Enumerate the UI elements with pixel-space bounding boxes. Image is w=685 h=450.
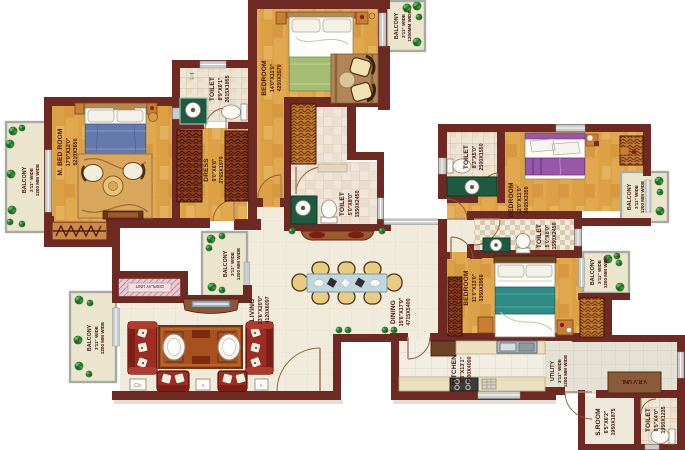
svg-text:DISPLAY UNIT: DISPLAY UNIT <box>135 284 164 289</box>
svg-text:V.R.V UNI.: V.R.V UNI. <box>621 378 647 384</box>
svg-text:BEDROOM: BEDROOM <box>508 182 515 217</box>
svg-text:1200 MM WIDE: 1200 MM WIDE <box>35 164 40 196</box>
svg-text:5'0"X8'0": 5'0"X8'0" <box>545 224 551 247</box>
svg-text:TOILET: TOILET <box>463 145 470 169</box>
svg-text:1950X1235: 1950X1235 <box>661 406 667 433</box>
svg-text:13'6"X20'0": 13'6"X20'0" <box>258 295 264 324</box>
svg-text:6'5"X4'0": 6'5"X4'0" <box>654 408 660 431</box>
svg-text:1550X2450: 1550X2450 <box>552 222 558 249</box>
svg-text:11'0"X13'0": 11'0"X13'0" <box>472 273 478 302</box>
svg-text:2500X4000: 2500X4000 <box>467 356 473 383</box>
svg-text:3'11" WIDE: 3'11" WIDE <box>557 359 562 383</box>
svg-text:14'0"X11'9": 14'0"X11'9" <box>270 63 276 92</box>
svg-text:○: ○ <box>259 383 262 389</box>
svg-text:DRESS: DRESS <box>203 158 210 182</box>
svg-text:9'0"X6'6": 9'0"X6'6" <box>212 158 218 181</box>
svg-text:4120X6097: 4120X6097 <box>265 296 271 323</box>
svg-text:2765X1970: 2765X1970 <box>219 156 225 183</box>
svg-text:TOILET: TOILET <box>536 224 543 248</box>
svg-text:2615X1855: 2615X1855 <box>225 75 231 102</box>
svg-text:M. BED ROOM: M. BED ROOM <box>57 129 64 176</box>
svg-text:BALCONY: BALCONY <box>22 166 28 193</box>
svg-text:3'11" WIDE: 3'11" WIDE <box>230 252 235 276</box>
svg-text:3'11" WIDE: 3'11" WIDE <box>29 168 34 192</box>
svg-text:2500X1550: 2500X1550 <box>479 143 485 170</box>
svg-text:8'3"X5'0": 8'3"X5'0" <box>472 145 478 168</box>
svg-text:BALCONY: BALCONY <box>87 324 93 351</box>
svg-text:15'6"X17'9": 15'6"X17'9" <box>399 297 405 326</box>
svg-text:6'5"X6'2": 6'5"X6'2" <box>604 410 610 433</box>
svg-text:5210X3650: 5210X3650 <box>73 138 79 165</box>
svg-text:LIVING: LIVING <box>249 299 256 322</box>
svg-text:3'11" WIDE: 3'11" WIDE <box>597 260 602 284</box>
svg-text:DINING: DINING <box>390 300 397 324</box>
svg-text:S.ROOM: S.ROOM <box>595 408 602 436</box>
svg-text:BEDROOM: BEDROOM <box>463 270 470 305</box>
svg-text:☐○: ☐○ <box>134 383 142 389</box>
svg-text:TOILET: TOILET <box>645 408 652 432</box>
svg-text:17'0"X12'0": 17'0"X12'0" <box>66 137 72 166</box>
svg-text:1950X1875: 1950X1875 <box>611 408 617 435</box>
svg-text:3'11" WIDE: 3'11" WIDE <box>634 185 639 209</box>
svg-text:1200 MM WIDE: 1200 MM WIDE <box>640 181 645 213</box>
svg-text:KITCHEN: KITCHEN <box>451 355 458 385</box>
svg-text:TOILET: TOILET <box>339 192 346 216</box>
svg-text:3'11" WIDE: 3'11" WIDE <box>401 14 406 38</box>
svg-text:⌛: ⌛ <box>188 72 195 80</box>
svg-text:1200 MM WIDE: 1200 MM WIDE <box>100 322 105 354</box>
svg-text:8'3"X13'1": 8'3"X13'1" <box>460 357 466 383</box>
svg-text:4715X5400: 4715X5400 <box>406 298 412 325</box>
svg-text:BEDROOM: BEDROOM <box>261 60 268 95</box>
svg-text:12'0"X11'0": 12'0"X11'0" <box>517 185 523 214</box>
svg-text:1200 MM WIDE: 1200 MM WIDE <box>236 248 241 280</box>
svg-text:BALCONY: BALCONY <box>394 12 400 39</box>
svg-text:8'9"X6'1": 8'9"X6'1" <box>218 77 224 100</box>
svg-text:BALCONY: BALCONY <box>590 258 596 285</box>
svg-text:TOILET: TOILET <box>209 77 216 101</box>
svg-text:BALCONY: BALCONY <box>627 183 633 210</box>
svg-text:UTILITY: UTILITY <box>550 361 556 381</box>
svg-text:○: ○ <box>201 383 204 389</box>
svg-text:5'0"X8'0": 5'0"X8'0" <box>348 192 354 215</box>
svg-text:3665X3350: 3665X3350 <box>524 186 530 213</box>
svg-text:4250X3570: 4250X3570 <box>277 64 283 91</box>
svg-text:1200 MM WIDE: 1200 MM WIDE <box>563 355 568 387</box>
svg-text:3'11" WIDE: 3'11" WIDE <box>94 326 99 350</box>
svg-text:3350X3950: 3350X3950 <box>479 274 485 301</box>
svg-text:BALCONY: BALCONY <box>223 250 229 277</box>
svg-text:1550X2450: 1550X2450 <box>355 190 361 217</box>
svg-text:1200MM WIDE: 1200MM WIDE <box>407 10 412 41</box>
svg-text:1200 MM WIDE: 1200 MM WIDE <box>603 256 608 288</box>
